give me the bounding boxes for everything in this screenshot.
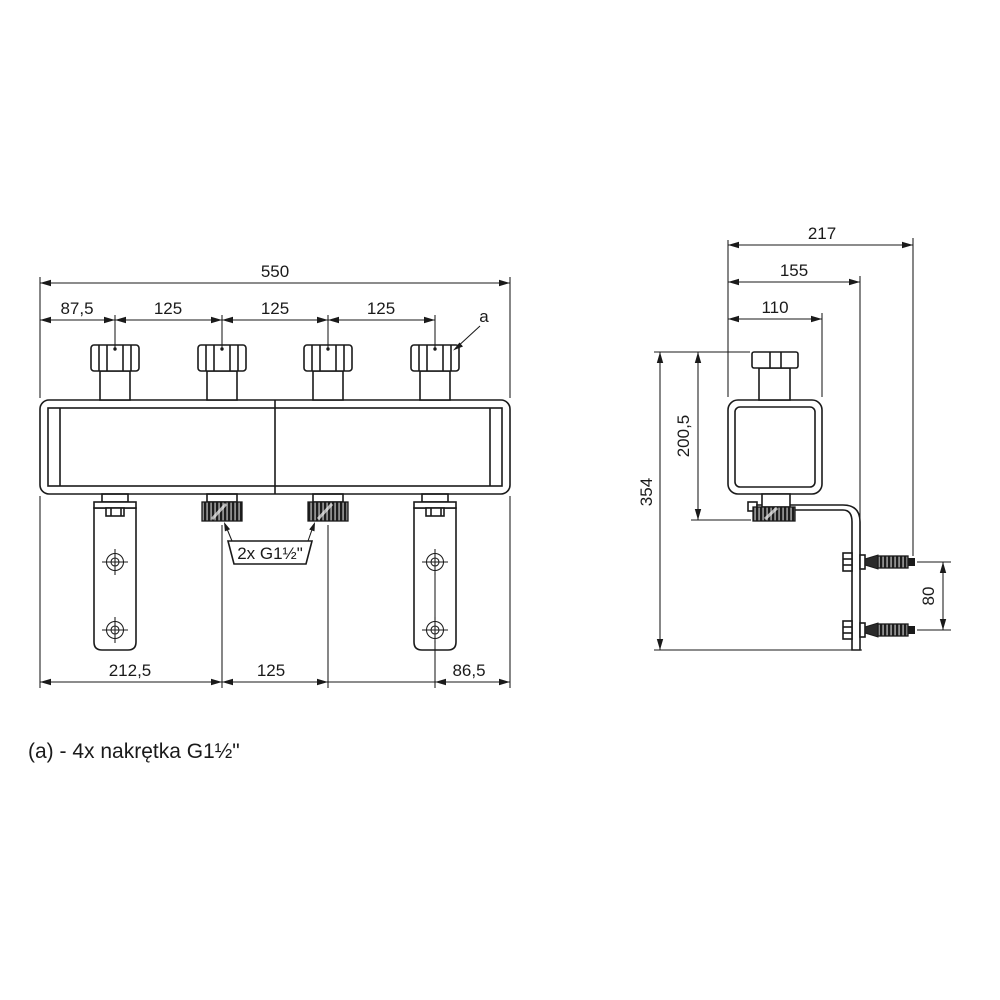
dim-text-125c: 125 bbox=[367, 299, 395, 318]
dim-top-spacing: 87,5 125 125 125 bbox=[40, 299, 435, 350]
thread-callout-label: 2x G1½" bbox=[237, 544, 303, 563]
thread-nipple-side bbox=[753, 507, 795, 521]
thread-nipple-1 bbox=[202, 494, 242, 521]
mounting-bracket-right bbox=[414, 494, 456, 650]
leader-a-label: a bbox=[479, 307, 489, 326]
dim-text-125b: 125 bbox=[261, 299, 289, 318]
thread-callout: 2x G1½" bbox=[224, 522, 315, 564]
hex-nut-1 bbox=[91, 345, 139, 400]
hex-nut-side bbox=[752, 352, 798, 400]
dim-text-125d: 125 bbox=[257, 661, 285, 680]
dim-height-overall: 354 bbox=[637, 352, 862, 650]
dim-text-80: 80 bbox=[919, 587, 938, 606]
dim-text-550: 550 bbox=[261, 262, 289, 281]
dim-text-86-5: 86,5 bbox=[452, 661, 485, 680]
dim-text-155: 155 bbox=[780, 261, 808, 280]
front-view: 550 87,5 125 125 125 a bbox=[40, 262, 510, 688]
hex-nut-3 bbox=[304, 345, 352, 400]
dim-text-110: 110 bbox=[761, 298, 788, 317]
footnote-text: (a) - 4x nakrętka G1½" bbox=[28, 740, 240, 763]
dim-anchor-spacing: 80 bbox=[917, 562, 951, 630]
dim-text-87-5: 87,5 bbox=[60, 299, 93, 318]
dim-text-217: 217 bbox=[808, 224, 836, 243]
manifold-body bbox=[40, 400, 510, 494]
hex-nut-4 bbox=[411, 345, 459, 400]
side-view: 217 155 110 354 200,5 bbox=[637, 224, 951, 650]
thread-nipple-2 bbox=[308, 494, 348, 521]
hex-nut-2 bbox=[198, 345, 246, 400]
technical-drawing-canvas: 550 87,5 125 125 125 a bbox=[0, 0, 1000, 1000]
dim-text-212-5: 212,5 bbox=[109, 661, 152, 680]
mounting-bracket-left bbox=[94, 494, 136, 650]
manifold-body-section bbox=[728, 400, 822, 507]
leader-a: a bbox=[453, 307, 489, 351]
dim-text-200-5: 200,5 bbox=[674, 415, 693, 458]
dim-text-354: 354 bbox=[637, 478, 656, 506]
dim-text-125a: 125 bbox=[154, 299, 182, 318]
